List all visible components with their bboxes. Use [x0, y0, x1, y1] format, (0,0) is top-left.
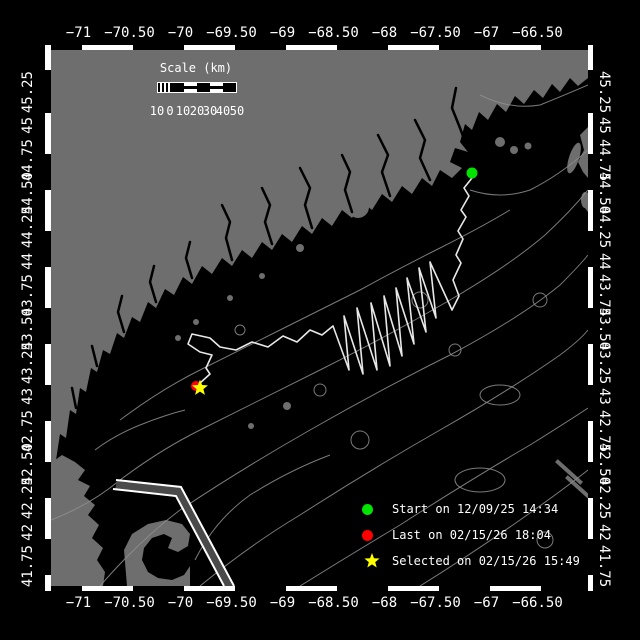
map-border-right [588, 45, 593, 591]
latitude-tick-label: 43.25 [20, 346, 36, 380]
legend-label: Selected on 02/15/26 15:49 [384, 554, 580, 568]
land-massachusetts [51, 455, 105, 586]
legend-item-selected: Selected on 02/15/26 15:49 [362, 548, 580, 574]
latitude-tick-label: 44.25 [596, 210, 612, 244]
longitude-tick-label: −67 [461, 595, 512, 611]
longitude-tick-label: −66.50 [512, 25, 563, 41]
start-marker[interactable] [467, 168, 478, 179]
longitude-tick-label: −68.50 [308, 25, 359, 41]
axis-longitude-top: −71−70.50−70−69.50−69−68.50−68−67.50−67−… [53, 25, 563, 41]
longitude-tick-label: −70.50 [104, 25, 155, 41]
scale-bar-title: Scale (km) [150, 61, 242, 75]
legend-label: Last on 02/15/26 18:04 [384, 528, 551, 542]
legend-label: Start on 12/09/25 14:34 [384, 502, 558, 516]
legend-item-last: Last on 02/15/26 18:04 [362, 522, 580, 548]
scale-segment [210, 83, 223, 92]
axis-latitude-right: 45.254544.7544.5044.254443.7543.5043.254… [596, 75, 612, 583]
longitude-tick-label: −70 [155, 595, 206, 611]
latitude-tick-label: 45.25 [20, 75, 36, 109]
longitude-tick-label: −68.50 [308, 595, 359, 611]
latitude-tick-label: 43.75 [20, 278, 36, 312]
legend-item-start: Start on 12/09/25 14:34 [362, 496, 580, 522]
red-dot-icon [362, 530, 384, 541]
scale-segment [223, 83, 236, 92]
green-dot-icon [362, 504, 384, 515]
longitude-tick-label: −68 [359, 25, 410, 41]
scale-segment [197, 83, 210, 92]
longitude-tick-label: −69.50 [206, 595, 257, 611]
scale-bar [157, 82, 237, 93]
axis-longitude-bottom: −71−70.50−70−69.50−69−68.50−68−67.50−67−… [53, 595, 563, 611]
latitude-tick-label: 41.75 [596, 549, 612, 583]
longitude-tick-label: −69.50 [206, 25, 257, 41]
legend: Start on 12/09/25 14:34 Last on 02/15/26… [362, 496, 580, 574]
latitude-tick-label: 42.25 [596, 481, 612, 515]
scale-segment [184, 83, 197, 92]
longitude-tick-label: −67.50 [410, 25, 461, 41]
latitude-tick-label: 45 [20, 109, 36, 143]
scale-segment [158, 83, 171, 92]
axis-latitude-left: 45.254544.7544.5044.254443.7543.5043.254… [20, 75, 36, 583]
latitude-tick-label: 43.50 [20, 312, 36, 346]
land-cape-cod [124, 520, 190, 586]
map-border-bottom [46, 586, 593, 591]
latitude-tick-label: 44.25 [20, 210, 36, 244]
latitude-tick-label: 43 [20, 380, 36, 414]
yellow-star-icon [362, 551, 384, 571]
longitude-tick-label: −70 [155, 25, 206, 41]
latitude-tick-label: 41.75 [20, 549, 36, 583]
longitude-tick-label: −67.50 [410, 595, 461, 611]
longitude-tick-label: −66.50 [512, 595, 563, 611]
longitude-tick-label: −69 [257, 25, 308, 41]
latitude-tick-label: 42.25 [20, 481, 36, 515]
longitude-tick-label: −71 [53, 595, 104, 611]
longitude-tick-label: −67 [461, 25, 512, 41]
longitude-tick-label: −69 [257, 595, 308, 611]
longitude-tick-label: −70.50 [104, 595, 155, 611]
latitude-tick-label: 43.25 [596, 346, 612, 380]
scale-tick-label: 50 [227, 104, 247, 118]
latitude-tick-label: 45.25 [596, 75, 612, 109]
land-mainland [51, 50, 588, 463]
scale-segment [171, 83, 184, 92]
longitude-tick-label: −71 [53, 25, 104, 41]
longitude-tick-label: −68 [359, 595, 410, 611]
